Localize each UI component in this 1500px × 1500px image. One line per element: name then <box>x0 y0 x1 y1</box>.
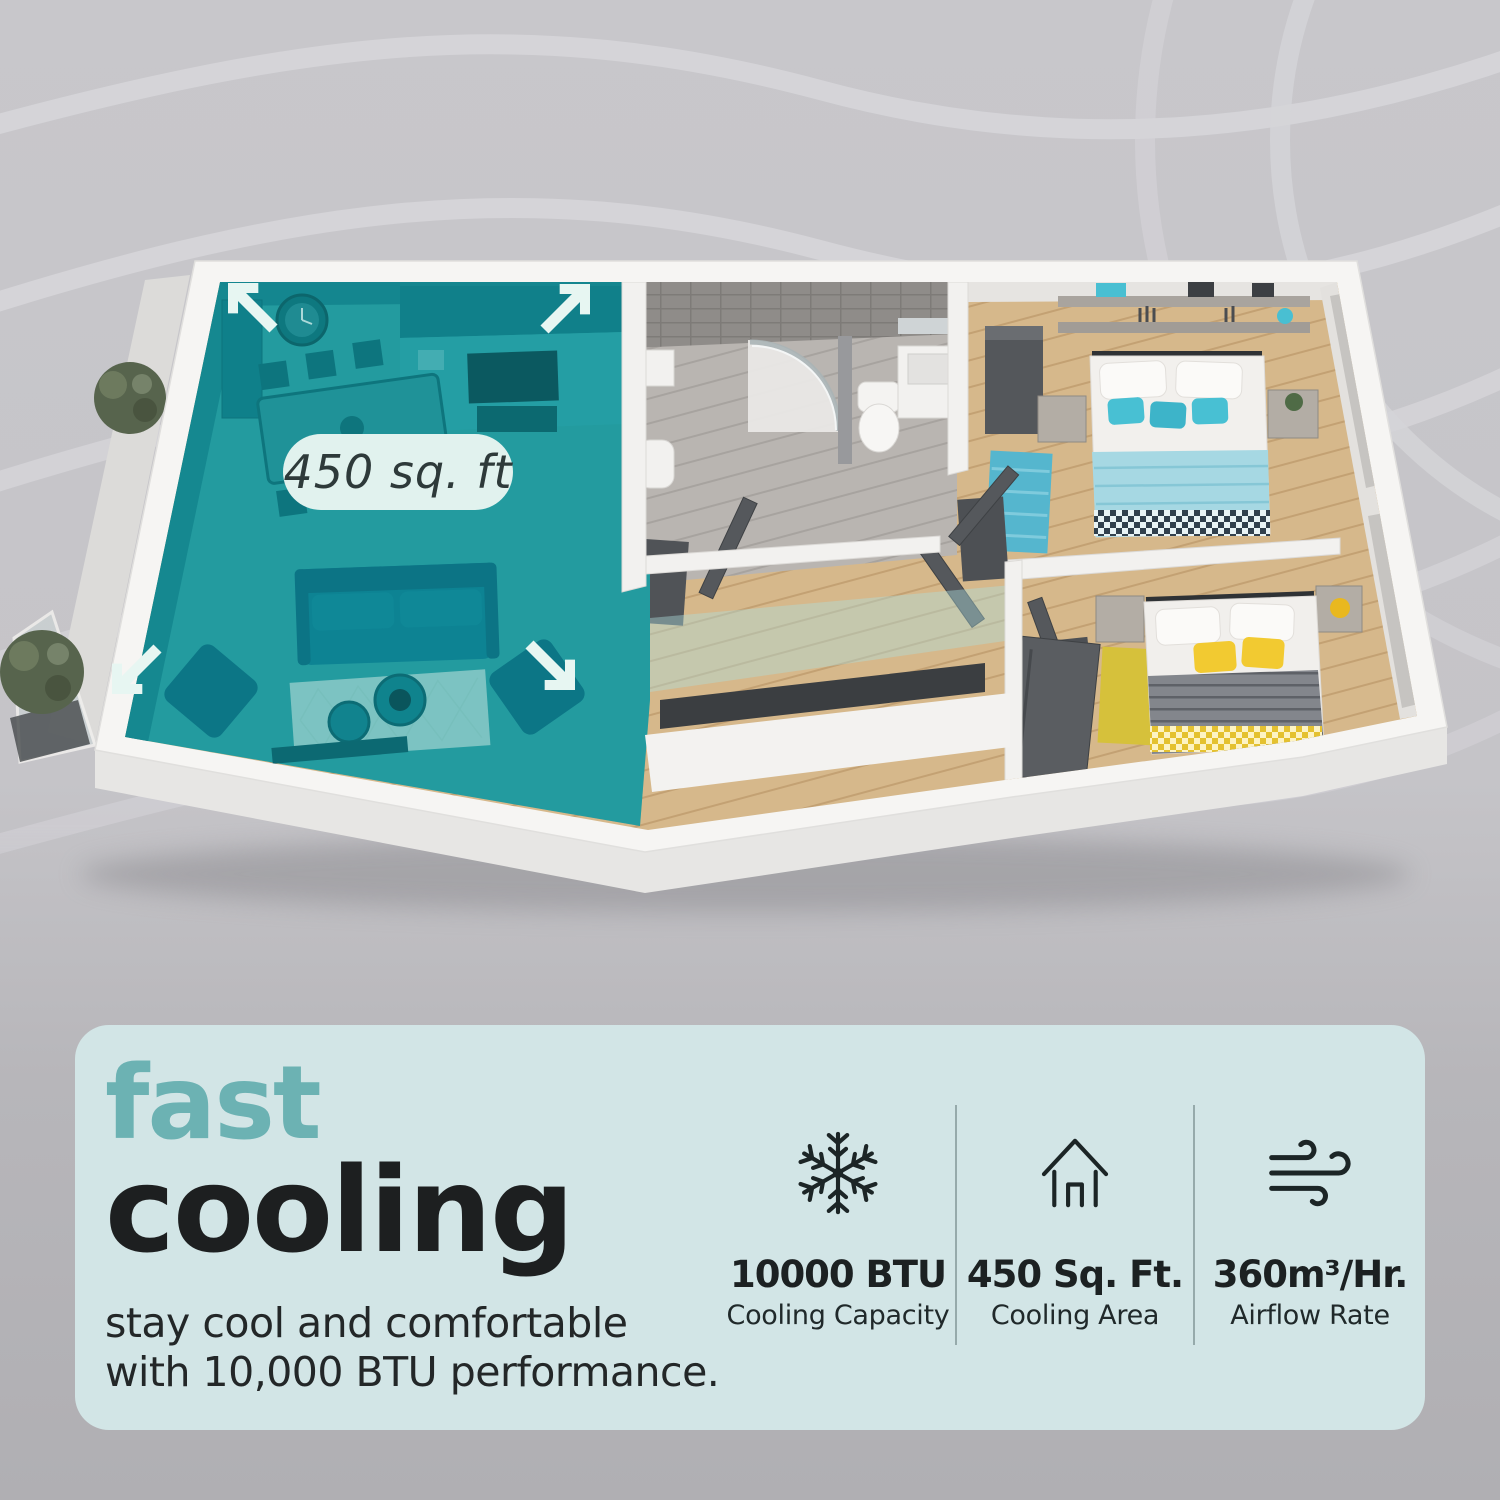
wind-icon <box>1264 1125 1356 1221</box>
stat-label: Cooling Area <box>991 1300 1159 1331</box>
balcony-plant-icon <box>94 362 166 434</box>
stat-columns: 10000 BTU Cooling Capacity 450 Sq. Ft. C… <box>75 1025 1425 1430</box>
stat-label: Cooling Capacity <box>727 1300 950 1331</box>
house-icon <box>1029 1125 1121 1221</box>
info-card: fast cooling stay cool and comfortable w… <box>75 1025 1425 1430</box>
bed-blue <box>1090 354 1270 537</box>
snowflake-icon <box>792 1125 884 1221</box>
area-label-pill: 450 sq. ft <box>283 434 513 510</box>
stat-value: 10000 BTU <box>730 1253 946 1296</box>
stat-label: Airflow Rate <box>1230 1300 1390 1331</box>
stat-cooling-capacity: 10000 BTU Cooling Capacity <box>713 1125 963 1331</box>
balcony-plant-icon <box>0 630 84 714</box>
stat-value: 450 Sq. Ft. <box>967 1253 1183 1296</box>
stat-airflow-rate: 360m³/Hr. Airflow Rate <box>1185 1125 1435 1331</box>
bed-yellow <box>1144 594 1324 754</box>
product-infographic: 450 sq. ft fast cooling stay cool and co… <box>0 0 1500 1500</box>
area-label: 450 sq. ft <box>283 445 513 499</box>
toilet-icon <box>858 382 900 452</box>
stat-value: 360m³/Hr. <box>1213 1253 1408 1296</box>
stat-cooling-area: 450 Sq. Ft. Cooling Area <box>950 1125 1200 1331</box>
